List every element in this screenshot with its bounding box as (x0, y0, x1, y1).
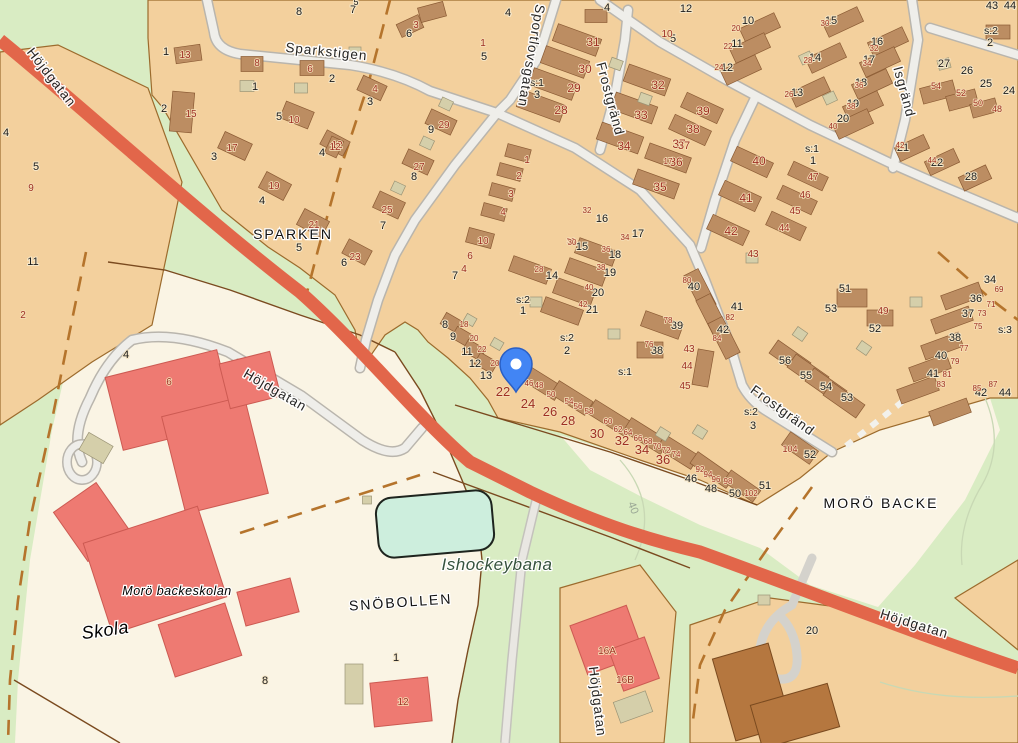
address-number: 22 (478, 345, 487, 354)
address-number: 69 (995, 285, 1004, 294)
survey-parcel-label: s:1 (805, 143, 819, 155)
address-number: 50 (973, 98, 983, 108)
address-number: 39 (696, 104, 710, 118)
address-number: 36 (855, 81, 864, 90)
address-number: 32 (583, 206, 592, 215)
parcel-number: 18 (609, 249, 621, 261)
parcel-number: 4 (319, 147, 325, 159)
address-number: 6 (467, 251, 473, 262)
parcel-number: 5 (296, 242, 302, 254)
parcel-number: 4 (604, 2, 610, 14)
parcel-number: 2 (564, 345, 570, 357)
address-number: 48 (535, 381, 544, 390)
parcel-number: 41 (927, 368, 939, 380)
address-number: 28 (554, 103, 568, 117)
address-number: 64 (624, 428, 633, 437)
outbuilding (345, 664, 363, 704)
address-number: 36 (602, 245, 611, 254)
address-number: 72 (662, 446, 671, 455)
outbuilding (910, 297, 922, 307)
area-name-label: Morö backeskolan (122, 584, 231, 598)
address-number: 13 (179, 50, 191, 61)
address-number: 32 (651, 78, 665, 92)
survey-parcel-label: s:2 (744, 406, 758, 418)
address-number: 75 (974, 322, 983, 331)
address-number: 38 (686, 122, 700, 136)
address-number: 4 (500, 207, 506, 218)
address-number: 17 (664, 157, 673, 166)
parcel-number: 43 (986, 0, 998, 12)
parcel-number: 53 (825, 303, 837, 315)
parcel-number: 1 (163, 46, 169, 58)
survey-parcel-label: s:2 (984, 25, 998, 37)
address-number: 22 (724, 42, 733, 51)
address-number: 46 (799, 190, 811, 201)
address-number: 43 (683, 344, 695, 355)
address-number: 42 (724, 224, 738, 238)
parcel-number: 19 (604, 267, 616, 279)
address-number: 56 (574, 402, 583, 411)
address-number: 28 (804, 56, 813, 65)
address-number: 43 (747, 249, 759, 260)
parcel-number: 11 (27, 256, 38, 268)
parcel-number: 8 (262, 675, 268, 687)
address-number: 9 (28, 183, 34, 194)
parcel-number: 24 (1003, 85, 1015, 97)
parcel-number: 20 (592, 287, 604, 299)
parcel-number: 12 (469, 358, 481, 370)
outbuilding (363, 496, 372, 504)
parcel-number: 4 (259, 195, 265, 207)
address-number: 47 (807, 172, 819, 183)
address-number: 8 (254, 58, 260, 69)
survey-parcel-label: s:1 (618, 366, 632, 378)
parcel-number: 8 (296, 6, 302, 18)
address-number: 71 (987, 300, 996, 309)
parcel-number: 27 (938, 58, 950, 70)
parcel-number: 51 (839, 283, 851, 295)
parcel-number: 5 (276, 111, 282, 123)
parcel-number: 11 (461, 346, 472, 358)
parcel-number: 5 (33, 161, 39, 173)
parcel-number: 3 (367, 96, 373, 108)
parcel-number: 7 (380, 220, 386, 232)
parcel-number: 1 (810, 155, 816, 167)
address-number: 40 (585, 283, 594, 292)
survey-parcel-label: s:2 (516, 294, 530, 306)
parcel-number: 54 (820, 381, 832, 393)
address-number: 83 (937, 380, 946, 389)
address-number: 52 (956, 88, 966, 98)
parcel-number: 53 (841, 392, 853, 404)
address-number: 48 (992, 104, 1002, 114)
address-number: 25 (381, 205, 393, 216)
parcel-number: 16 (596, 213, 608, 225)
survey-parcel-label: s:3 (998, 324, 1012, 336)
address-number: 34 (617, 139, 631, 153)
area-name-label: MORÖ BACKE (824, 494, 939, 511)
parcel-number: 39 (671, 320, 683, 332)
parcel-number: 51 (759, 480, 771, 492)
parcel-number: 15 (576, 241, 588, 253)
address-number: 30 (578, 62, 592, 76)
address-number: 20 (491, 359, 500, 368)
address-number: 6 (307, 64, 313, 75)
address-number: 10 (661, 29, 673, 40)
address-number: 12 (397, 697, 409, 708)
address-number: 27 (413, 162, 425, 173)
parcel-number: 40 (935, 350, 947, 362)
ice-rink (375, 489, 496, 559)
address-number: 82 (726, 313, 735, 322)
parcel-number: 12 (680, 3, 692, 15)
parcel-number: 41 (731, 301, 743, 313)
address-number: 77 (960, 344, 969, 353)
parcel-number: 9 (450, 331, 456, 343)
parcel-number: 44 (1004, 0, 1016, 12)
address-number: 60 (604, 417, 613, 426)
address-number: 58 (585, 407, 594, 416)
rink-layer (375, 489, 496, 559)
parcel-number: 6 (341, 257, 347, 269)
parcel-number: 56 (779, 355, 791, 367)
address-number: 32 (870, 44, 879, 53)
address-number: 24 (715, 63, 724, 72)
address-number: 16A (598, 646, 616, 657)
address-number: 26 (785, 90, 794, 99)
map-canvas[interactable]: 4511123454812563987756544510111213141516… (0, 0, 1018, 743)
address-number: 22 (496, 384, 510, 399)
parcel-number: 10 (742, 15, 754, 27)
address-number: 12 (329, 142, 341, 153)
address-number: 104 (782, 444, 797, 454)
parcel-number: 26 (961, 65, 973, 77)
address-number: 33 (634, 108, 648, 122)
address-number: 30 (568, 238, 577, 247)
location-pin-dot (511, 359, 522, 370)
parcel-number: 50 (729, 488, 741, 500)
parcel-number: 2 (329, 73, 335, 85)
address-number: 28 (535, 265, 544, 274)
address-number: 38 (597, 263, 606, 272)
parcel-number: 21 (586, 304, 598, 316)
address-number: 40 (829, 122, 838, 131)
address-number: 18 (460, 320, 469, 329)
parcel-number: 44 (999, 387, 1011, 399)
address-number: 30 (821, 19, 830, 28)
address-number: 23 (349, 252, 361, 263)
address-number: 17 (226, 143, 238, 154)
outbuilding (758, 595, 770, 605)
parcel-number: 52 (869, 323, 881, 335)
address-number: 42 (579, 300, 588, 309)
address-number: 78 (664, 316, 673, 325)
area-name-label: Ishockeybana (442, 555, 553, 574)
address-number: 26 (543, 404, 557, 419)
survey-parcel-label: s:2 (560, 332, 574, 344)
address-number: 35 (653, 180, 667, 194)
parcel-number: 48 (705, 483, 717, 495)
parcel-number: 2 (161, 103, 167, 115)
map-image: 4511123454812563987756544510111213141516… (0, 0, 1018, 743)
outbuilding (530, 297, 542, 307)
address-number: 31 (586, 35, 600, 49)
address-number: 50 (547, 390, 556, 399)
parcel-number: 1 (393, 652, 399, 664)
address-number: 29 (438, 120, 450, 131)
address-number: 85 (973, 384, 982, 393)
address-number: 3 (413, 20, 419, 31)
outbuilding (608, 329, 620, 339)
address-number: 54 (931, 81, 941, 91)
address-number: 73 (978, 309, 987, 318)
outbuilding (295, 83, 308, 93)
address-number: 20 (470, 334, 479, 343)
parcel-number: 25 (980, 78, 992, 90)
parcel-number: 5 (481, 51, 487, 63)
address-number: 16B (616, 675, 634, 686)
parcel-number: 4 (123, 349, 129, 361)
parcel-number: 37 (962, 308, 974, 320)
address-number: 10 (288, 115, 300, 126)
address-number: 1 (524, 155, 530, 166)
address-number: 44 (681, 361, 693, 372)
address-number: 49 (877, 306, 889, 317)
parcel-number: 1 (520, 305, 526, 317)
address-number: 102 (744, 489, 758, 498)
address-number: 62 (614, 425, 623, 434)
address-number: 1 (480, 38, 486, 49)
parcel-number: 13 (480, 370, 492, 382)
address-number: 24 (521, 396, 535, 411)
address-number: 20 (732, 24, 741, 33)
parcel-number: 6 (406, 28, 412, 40)
address-number: 37 (678, 140, 690, 152)
parcel-number: 55 (800, 370, 812, 382)
address-number: 79 (951, 357, 960, 366)
parcel-number: 7 (452, 270, 458, 282)
parcel-number: 36 (970, 293, 982, 305)
address-number: 4 (461, 264, 467, 275)
parcel-number: 5 (353, 0, 358, 7)
address-number: 41 (739, 191, 753, 205)
address-number: 15 (185, 109, 197, 120)
address-number: 42 (896, 141, 905, 150)
address-number: 44 (778, 223, 790, 234)
address-number: 3 (508, 189, 514, 200)
parcel-number: 20 (837, 113, 849, 125)
address-number: 4 (372, 84, 378, 95)
address-number: 30 (590, 426, 604, 441)
address-number: 45 (679, 381, 691, 392)
parcel-number: 9 (428, 124, 434, 136)
parcel-number: 8 (442, 319, 448, 331)
parcel-number: 46 (685, 473, 697, 485)
address-number: 29 (567, 81, 581, 95)
address-number: 45 (789, 206, 801, 217)
parcel-number: 20 (806, 625, 818, 637)
parcel-number: 3 (750, 420, 756, 432)
address-number: 98 (724, 477, 733, 486)
parcel-number: 38 (949, 332, 961, 344)
address-number: 80 (683, 276, 692, 285)
parcel-number: 11 (731, 38, 742, 50)
address-number: 84 (713, 334, 722, 343)
parcel-number: 4 (3, 127, 9, 139)
address-number: 76 (645, 340, 654, 349)
address-number: 96 (712, 475, 721, 484)
address-number: 19 (268, 181, 280, 192)
address-number: 28 (561, 413, 575, 428)
address-number: 38 (847, 102, 856, 111)
parcel-number: 2 (987, 37, 993, 49)
parcel-number: 52 (804, 449, 816, 461)
address-number: 2 (516, 171, 522, 182)
parcel-number: 3 (534, 89, 540, 101)
area-name-label: SPARKEN (253, 226, 333, 242)
address-number: 66 (634, 434, 643, 443)
address-number: 87 (989, 380, 998, 389)
address-number: 34 (863, 59, 872, 68)
parcel-number: 28 (965, 171, 977, 183)
address-number: 81 (943, 370, 952, 379)
address-number: 44 (928, 156, 937, 165)
address-number: 6 (166, 377, 172, 388)
address-number: 10 (477, 236, 489, 247)
address-number: 40 (752, 154, 766, 168)
parcel-number: 17 (632, 228, 644, 240)
address-number: 74 (672, 450, 681, 459)
parcel-number: 4 (505, 7, 511, 19)
address-number: 2 (20, 310, 26, 321)
parcel-number: 1 (252, 81, 258, 93)
parcel-number: 3 (211, 151, 217, 163)
address-number: 34 (621, 233, 630, 242)
parcel-number: 14 (546, 270, 558, 282)
